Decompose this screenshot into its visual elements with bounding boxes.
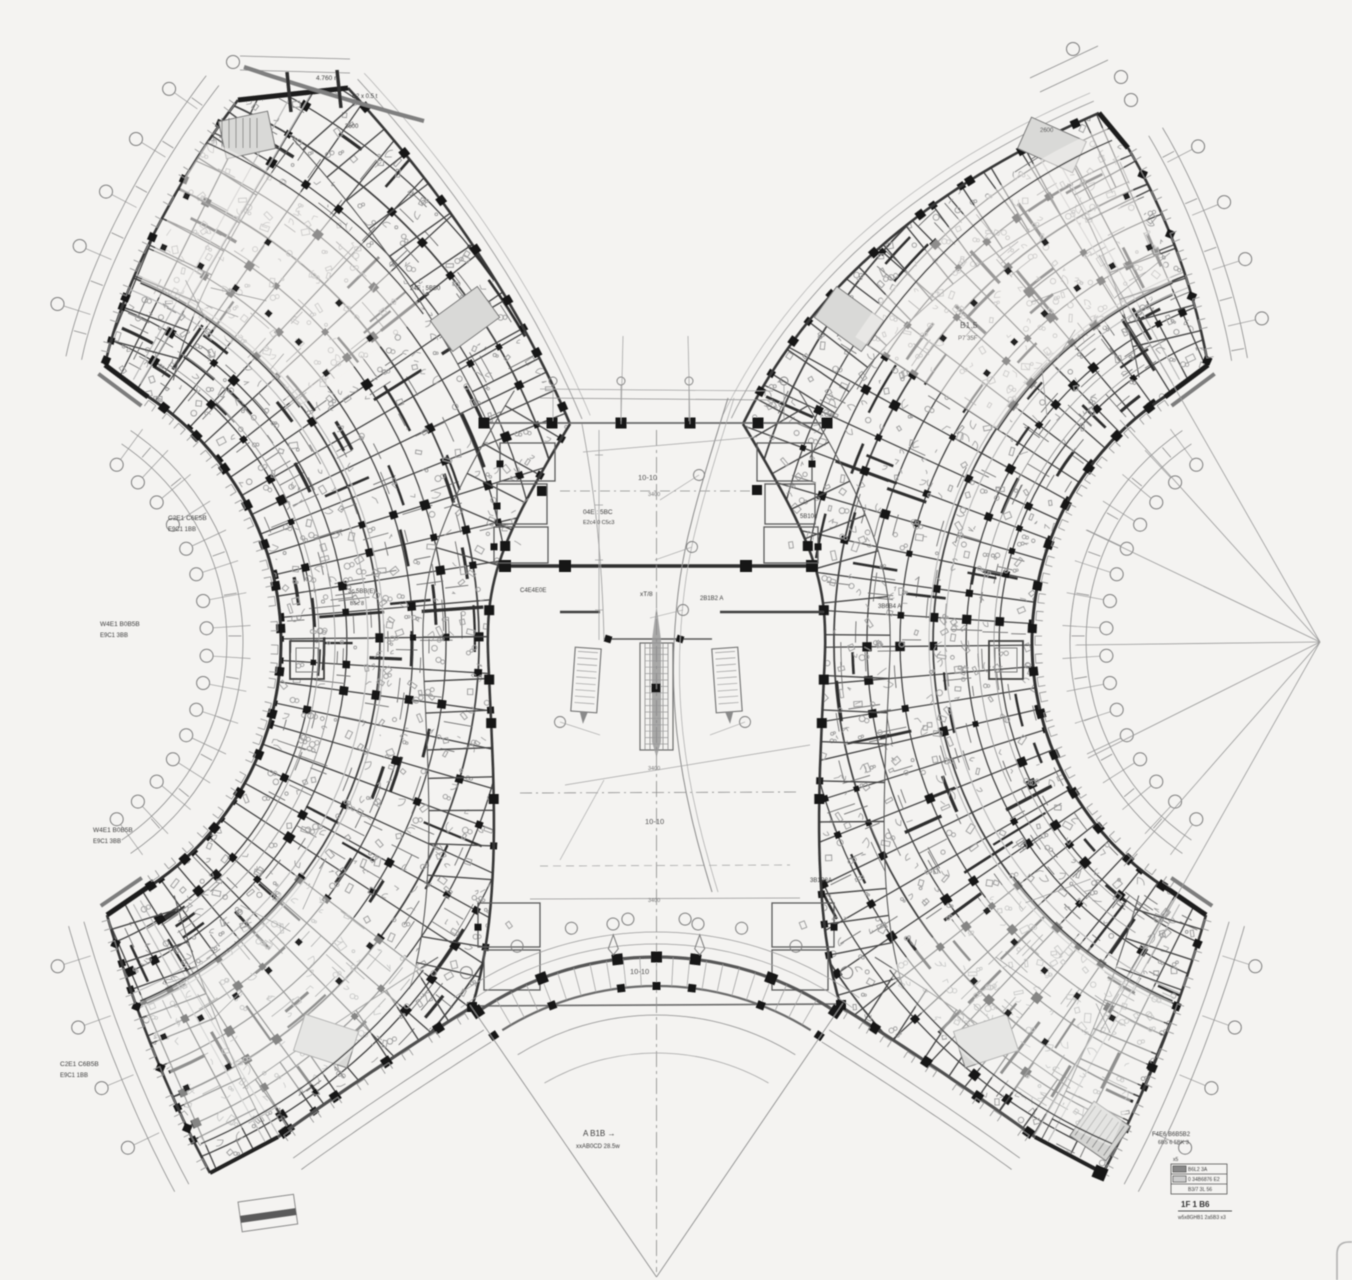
svg-text:4.760 m: 4.760 m	[316, 75, 340, 82]
svg-text:xT/8: xT/8	[640, 591, 653, 598]
svg-text:C2E1 C6B5B: C2E1 C6B5B	[60, 1061, 99, 1068]
svg-text:xxAB0CD 28.5w: xxAB0CD 28.5w	[576, 1144, 620, 1150]
svg-text:3B1B8A: 3B1B8A	[810, 878, 832, 884]
svg-text:6B5 6 5BK 3: 6B5 6 5BK 3	[1158, 1140, 1189, 1146]
svg-text:10-10: 10-10	[638, 473, 657, 482]
svg-text:10-10: 10-10	[630, 967, 649, 976]
svg-text:B5c 8: B5c 8	[350, 601, 364, 607]
svg-text:E9C1 3BB: E9C1 3BB	[100, 633, 128, 639]
svg-text:E9C1 1BB: E9C1 1BB	[168, 527, 196, 533]
svg-text:5B10c: 5B10c	[800, 514, 817, 520]
svg-text:3600: 3600	[345, 124, 359, 130]
svg-text:E9C1 1BB: E9C1 1BB	[60, 1073, 88, 1079]
svg-text:W4E1 B0B5B: W4E1 B0B5B	[93, 827, 133, 834]
svg-text:C4E4E0E: C4E4E0E	[520, 588, 546, 594]
svg-text:2600: 2600	[1040, 128, 1054, 134]
svg-text:B3/7 3L 56: B3/7 3L 56	[1188, 1187, 1212, 1193]
svg-text:A B1B →: A B1B →	[583, 1129, 615, 1138]
svg-text:10-10: 10-10	[645, 817, 664, 826]
svg-text:3400: 3400	[648, 766, 660, 772]
svg-text:w5x8GHB1 2a5B3 x3: w5x8GHB1 2a5B3 x3	[1178, 1215, 1226, 1221]
svg-text:B6L2 3A: B6L2 3A	[1188, 1167, 1208, 1173]
svg-text:3B6B4 A: 3B6B4 A	[878, 604, 901, 610]
svg-text:24E : 5BB0: 24E : 5BB0	[410, 286, 441, 292]
svg-text:F4E6 B6B5B2: F4E6 B6B5B2	[1152, 1132, 1191, 1138]
svg-text:3400: 3400	[648, 492, 660, 498]
svg-text:3400: 3400	[648, 898, 660, 904]
svg-text:0 34B6876 E2: 0 34B6876 E2	[1188, 1177, 1220, 1183]
svg-text:E9C1 3BB: E9C1 3BB	[93, 839, 121, 845]
svg-text:E2c4 0 C5c3: E2c4 0 C5c3	[583, 520, 615, 526]
svg-text:3c 5BB(E): 3c 5BB(E)	[348, 589, 375, 595]
svg-text:P7 35F: P7 35F	[958, 336, 978, 342]
svg-text:W4E1 B0B5B: W4E1 B0B5B	[100, 621, 140, 628]
svg-text:1F 1 B6: 1F 1 B6	[1181, 1200, 1210, 1209]
svg-text:2B1B2 A: 2B1B2 A	[700, 596, 723, 602]
svg-text:B2 x 0.5 t: B2 x 0.5 t	[352, 94, 378, 100]
svg-text:04E : 5BC: 04E : 5BC	[583, 509, 613, 516]
svg-text:x5: x5	[1173, 1157, 1179, 1163]
svg-text:C2E1 C6E5B: C2E1 C6E5B	[168, 515, 207, 522]
svg-text:B1.5: B1.5	[960, 320, 978, 330]
